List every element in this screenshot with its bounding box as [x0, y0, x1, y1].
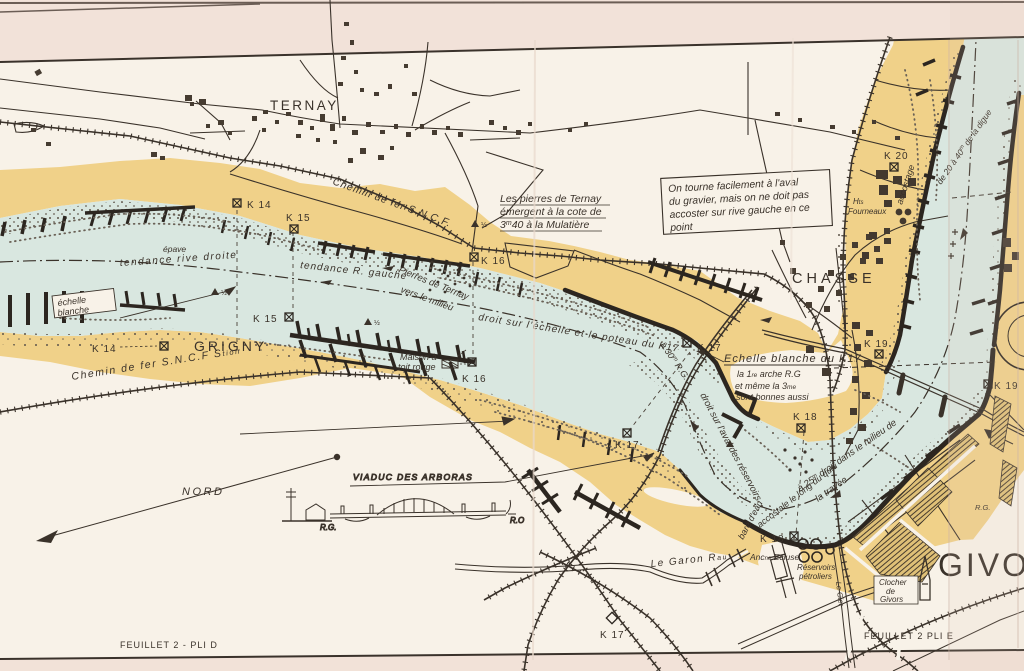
svg-text:Echelle blanche du K17: Echelle blanche du K17 [724, 353, 862, 365]
svg-text:Ancne Ecluse: Ancne Ecluse [749, 552, 799, 562]
svg-text:½: ½ [481, 221, 487, 229]
svg-text:K 16: K 16 [462, 374, 487, 385]
svg-text:K 18: K 18 [760, 534, 785, 545]
svg-text:R.G.: R.G. [320, 523, 336, 532]
svg-text:toit rouge: toit rouge [398, 362, 436, 372]
svg-text:Givors: Givors [880, 595, 903, 604]
svg-text:VIADUC DES ARBORAS: VIADUC DES ARBORAS [353, 472, 473, 482]
svg-text:Les pierres de Ternay: Les pierres de Ternay [500, 193, 602, 205]
svg-text:K 15: K 15 [286, 213, 311, 224]
svg-text:K 14: K 14 [247, 200, 272, 211]
svg-text:CHASSE: CHASSE [792, 271, 876, 287]
svg-text:K 18: K 18 [793, 412, 818, 423]
svg-text:Clocher: Clocher [879, 578, 907, 587]
svg-text:R.O: R.O [510, 516, 524, 525]
svg-text:TERNAY: TERNAY [270, 98, 339, 113]
svg-text:FEUILLET 2 - PLI D: FEUILLET 2 - PLI D [120, 640, 218, 650]
svg-text:K 19: K 19 [864, 339, 889, 350]
svg-text:K 17: K 17 [697, 343, 722, 354]
svg-text:épave: épave [163, 244, 186, 254]
svg-text:½: ½ [374, 319, 380, 327]
svg-text:K 17: K 17 [600, 630, 625, 641]
svg-text:Réservoirs: Réservoirs [797, 563, 835, 572]
svg-text:émergent à la cote de: émergent à la cote de [500, 206, 602, 218]
svg-text:point: point [669, 222, 694, 234]
svg-text:pétroliers: pétroliers [798, 572, 832, 581]
svg-text:NORD: NORD [182, 486, 224, 498]
svg-text:FEUILLET 2 PLI E: FEUILLET 2 PLI E [864, 631, 954, 641]
svg-text:K 15: K 15 [253, 314, 278, 325]
svg-text:K 17: K 17 [615, 440, 640, 451]
svg-text:sont bonnes aussi: sont bonnes aussi [736, 392, 810, 402]
svg-text:K 16: K 16 [481, 256, 506, 267]
svg-text:3m40 à la Mulatière: 3m40 à la Mulatière [500, 219, 589, 231]
svg-text:Fourneaux: Fourneaux [848, 207, 887, 216]
svg-text:Maison à: Maison à [400, 352, 437, 362]
svg-text:K 14: K 14 [92, 344, 117, 355]
svg-text:la 1re arche R.G: la 1re arche R.G [737, 369, 801, 379]
svg-text:K 20: K 20 [884, 151, 909, 162]
